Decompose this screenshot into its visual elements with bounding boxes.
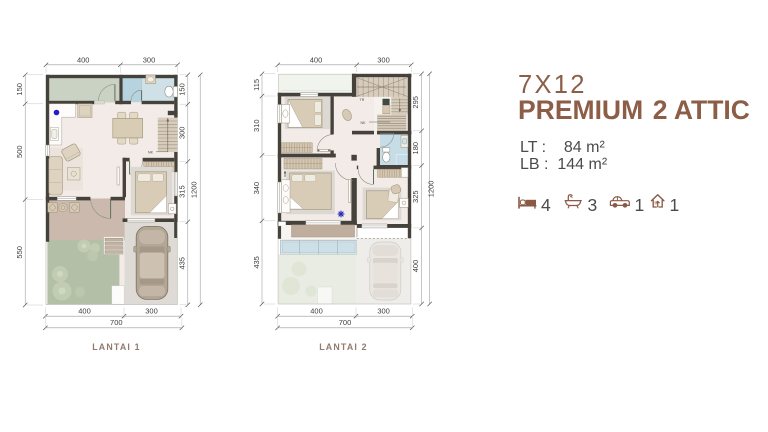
svg-text:180: 180 xyxy=(411,142,420,155)
svg-text:700: 700 xyxy=(110,318,123,327)
svg-text:400: 400 xyxy=(310,307,323,316)
svg-text:310: 310 xyxy=(252,119,261,132)
svg-text:300: 300 xyxy=(177,127,186,140)
svg-text:115: 115 xyxy=(252,79,261,91)
svg-text:300: 300 xyxy=(377,307,390,316)
svg-text:295: 295 xyxy=(411,96,420,109)
svg-text:300: 300 xyxy=(145,307,158,316)
svg-text:LANTAI 1: LANTAI 1 xyxy=(92,342,141,352)
svg-text:LANTAI 2: LANTAI 2 xyxy=(319,342,368,352)
svg-text:NK: NK xyxy=(148,151,154,155)
svg-text:300: 300 xyxy=(377,55,390,64)
svg-text:300: 300 xyxy=(143,55,156,64)
svg-text:NK: NK xyxy=(361,121,367,125)
svg-text:400: 400 xyxy=(411,260,420,273)
svg-text:435: 435 xyxy=(252,256,261,269)
svg-text:150: 150 xyxy=(177,83,186,96)
svg-text:TR: TR xyxy=(360,98,365,102)
svg-text:435: 435 xyxy=(177,257,186,270)
svg-text:150: 150 xyxy=(15,83,24,96)
svg-text:315: 315 xyxy=(177,185,186,198)
svg-text:400: 400 xyxy=(77,55,90,64)
svg-text:325: 325 xyxy=(411,190,420,203)
svg-text:550: 550 xyxy=(15,246,24,259)
svg-text:400: 400 xyxy=(78,307,91,316)
svg-text:500: 500 xyxy=(15,145,24,158)
svg-text:700: 700 xyxy=(339,318,352,327)
svg-text:1200: 1200 xyxy=(427,181,436,198)
svg-text:1200: 1200 xyxy=(190,181,199,198)
svg-text:340: 340 xyxy=(252,182,261,195)
svg-text:400: 400 xyxy=(310,55,323,64)
